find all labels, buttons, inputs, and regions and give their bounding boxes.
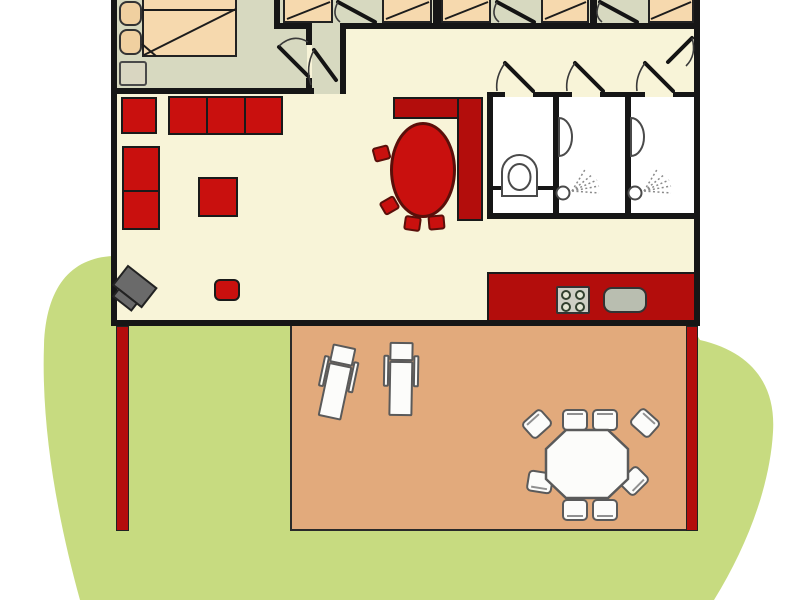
wash-basin-icons [559, 118, 644, 156]
floor-plan [0, 0, 800, 600]
shower-spray-icon [629, 168, 672, 200]
shower-spray-icon [557, 168, 600, 200]
bed-fold-lines [142, 2, 691, 56]
door-leaf-lines [279, 2, 692, 91]
plan-line-art [0, 0, 800, 600]
door-swing-arcs [279, 2, 694, 91]
toilet-icon [502, 155, 537, 196]
tv-icon [108, 266, 157, 314]
garden-table-icon [546, 430, 628, 498]
